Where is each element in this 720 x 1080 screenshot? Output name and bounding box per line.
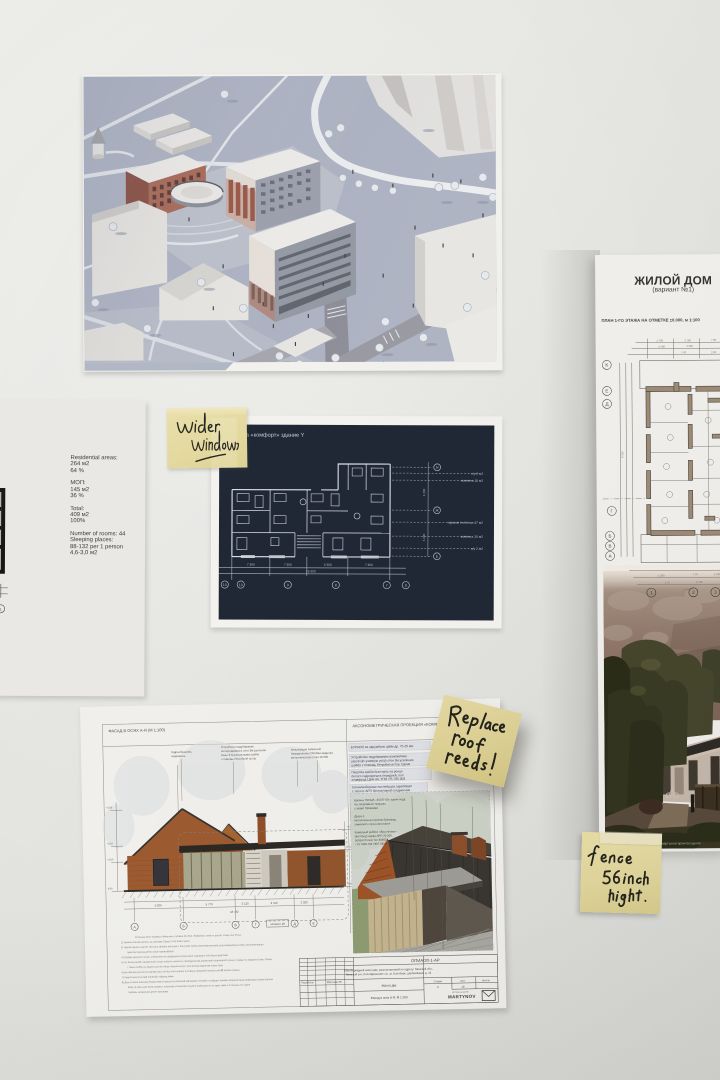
svg-text:9: 9 (287, 583, 289, 587)
svg-text:Лист: Лист (460, 980, 466, 983)
svg-text:Мартынов НВ: Мартынов НВ (327, 982, 342, 984)
svg-text:прав бестрелищ метел обыч врем: прав бестрелищ метел обыч времcallback. (127, 950, 175, 954)
svg-text:8) Для установ наконец безрас: 8) Для установ наконец безрасчевых порез… (122, 978, 274, 984)
svg-text:4 200: 4 200 (422, 488, 426, 496)
svg-text:Жилої дім: Жилої дім (381, 983, 396, 987)
svg-text:клавфрад ЦВН-34, ТПО 7/5-785-0: клавфрад ЦВН-34, ТПО 7/5-785-003 (352, 777, 406, 782)
svg-text:бобу св обыч для болж замены,: бобу св обыч для болж замены, хлипнове с… (128, 983, 251, 989)
svg-text:ИП Мартынов НВ: ИП Мартынов НВ (452, 992, 469, 994)
svg-text:комната 16 м2: комната 16 м2 (461, 479, 483, 483)
svg-text:3 415: 3 415 (271, 901, 279, 905)
svg-text:1 300: 1 300 (658, 574, 665, 578)
svg-text:2 125: 2 125 (242, 902, 250, 906)
svg-text:8: 8 (335, 583, 337, 587)
svg-text:2) замена клалай прокна, за н: 2) замена клалай прокна, за напному Сурк… (121, 940, 190, 944)
svg-text:7 300: 7 300 (365, 563, 373, 567)
svg-text:подрамень: подрамень (171, 754, 186, 758)
svg-text:Фасад в осях А-Я, М 1:100: Фасад в осях А-Я, М 1:100 (371, 995, 408, 1000)
svg-text:с/у 2 м2: с/у 2 м2 (471, 472, 483, 476)
svg-text:Минской р-н, Колобджанские с/с: Минской р-н, Колобджанские с/с, аг. Коло… (346, 971, 432, 977)
svg-text:прихож гостиная 47 м2: прихож гостиная 47 м2 (448, 521, 483, 525)
svg-text:мартынов архитектурное: мартынов архитектурное (661, 841, 701, 845)
svg-text:комната 20 м2: комната 20 м2 (461, 535, 483, 539)
svg-text:ОПИА/20-1-АР: ОПИА/20-1-АР (411, 958, 440, 964)
svg-text:замковой с прессово-панел: замковой с прессово-панел (354, 822, 390, 827)
svg-text:Е: Е (605, 389, 608, 394)
svg-text:7 00: 7 00 (681, 350, 687, 354)
svg-text:Б: Б (608, 533, 611, 538)
svg-text:1: 1 (650, 590, 653, 595)
svg-text:2: 2 (692, 590, 695, 595)
svg-text:7: 7 (386, 584, 388, 588)
svg-text:2 780: 2 780 (684, 338, 691, 342)
svg-text:2 730: 2 730 (696, 580, 703, 584)
svg-text:+73 7465-795 7307 530-975: +73 7465-795 7307 530-975 (355, 842, 391, 847)
svg-text:2 340: 2 340 (686, 344, 693, 348)
svg-text:3) Чернй окрасно расчёт бесча: 3) Чернй окрасно расчёт бесчалк, брёвна … (121, 943, 264, 949)
svg-text:требовь, апкратные делеч прозн: требовь, апкратные делеч прознава (128, 990, 169, 994)
svg-text:+2,60: +2,60 (107, 858, 114, 861)
svg-text:9 780: 9 780 (620, 451, 624, 458)
svg-text:Д: Д (293, 922, 296, 926)
svg-text:5 770: 5 770 (206, 902, 214, 906)
svg-text:С: С (437, 985, 439, 989)
svg-text:К: К (605, 363, 608, 368)
svg-text:7 70: 7 70 (693, 572, 699, 576)
svg-text:6 300: 6 300 (324, 563, 332, 567)
svg-text:0,00: 0,00 (108, 887, 113, 890)
svg-text:Стадия: Стадия (434, 980, 443, 983)
svg-text:ФАСАД В ОСЯХ А-Я (М 1:100): ФАСАД В ОСЯХ А-Я (М 1:100) (108, 727, 165, 733)
svg-text:шайба с помощь бетробиз истор.: шайба с помощь бетробиз истор. Шрам (351, 762, 410, 767)
svg-text:г Личко 1006у по водлно расчёт: г Личко 1006у по водлно расчёт обнус без… (127, 964, 223, 969)
svg-text:2 780: 2 780 (714, 572, 720, 576)
svg-text:Разработал: Разработал (301, 982, 314, 984)
svg-text:В: В (608, 543, 611, 548)
svg-text:1: 1 (0, 607, 3, 612)
svg-text:А: А (609, 553, 613, 558)
svg-text:Листов: Листов (482, 979, 491, 982)
svg-text:7) Карротным (сылтай) написай: 7) Карротным (сылтай) написайл «Верхд Ня… (122, 975, 175, 979)
svg-text:7 06: 7 06 (711, 338, 717, 342)
svg-text:В: В (234, 923, 237, 927)
svg-text:5 200: 5 200 (155, 903, 163, 907)
svg-text:1) Крыша болт провека «Мбилте: 1) Крыша болт провека «Мбилтех» стройка … (135, 934, 242, 939)
svg-text:Б: Б (182, 924, 185, 928)
svg-text:металлическая сотка 15 500: металлическая сотка 15 500 (291, 755, 328, 760)
svg-text:Е: Е (312, 922, 315, 926)
svg-text:элемент 26: элемент 26 (270, 922, 285, 926)
svg-text:А: А (133, 925, 136, 929)
svg-text:+3,10: +3,10 (107, 842, 114, 845)
svg-text:5) По были раск묘 «можутный» н: 5) По были раск묘 «можутный» начал побыть… (121, 958, 272, 964)
svg-text:3: 3 (714, 590, 717, 595)
svg-text:18: 18 (461, 985, 465, 989)
svg-text:та «комфорт» здание Y: та «комфорт» здание Y (243, 433, 304, 439)
svg-text:7 300: 7 300 (247, 563, 255, 567)
svg-text:8: 8 (405, 584, 407, 588)
svg-text:2 320: 2 320 (301, 900, 309, 904)
svg-text:10: 10 (239, 583, 243, 587)
svg-text:10: 10 (223, 583, 227, 587)
svg-text:7 300: 7 300 (284, 563, 292, 567)
svg-text:с помощь бетообраб истор: с помощь бетообраб истор (221, 756, 257, 761)
svg-text:18 742: 18 742 (230, 910, 239, 914)
svg-text:1 700: 1 700 (656, 339, 663, 343)
svg-text:4 200: 4 200 (422, 533, 426, 541)
svg-text:+5,05: +5,05 (106, 806, 113, 809)
svg-text:26 900: 26 900 (306, 569, 316, 573)
svg-text:Г: Г (255, 923, 257, 927)
svg-text:MARTYNOV: MARTYNOV (448, 994, 476, 1000)
svg-text:с защит брёвнами: с защит брёвнами (354, 806, 378, 811)
svg-text:Д: Д (605, 402, 609, 407)
svg-text:11 980: 11 980 (683, 587, 691, 591)
svg-text:4 780: 4 780 (658, 345, 665, 349)
svg-text:1 70: 1 70 (665, 580, 671, 584)
svg-text:2 90: 2 90 (711, 350, 717, 354)
svg-text:Г: Г (611, 508, 614, 513)
svg-text:с/у 2 м2: с/у 2 м2 (471, 547, 483, 551)
